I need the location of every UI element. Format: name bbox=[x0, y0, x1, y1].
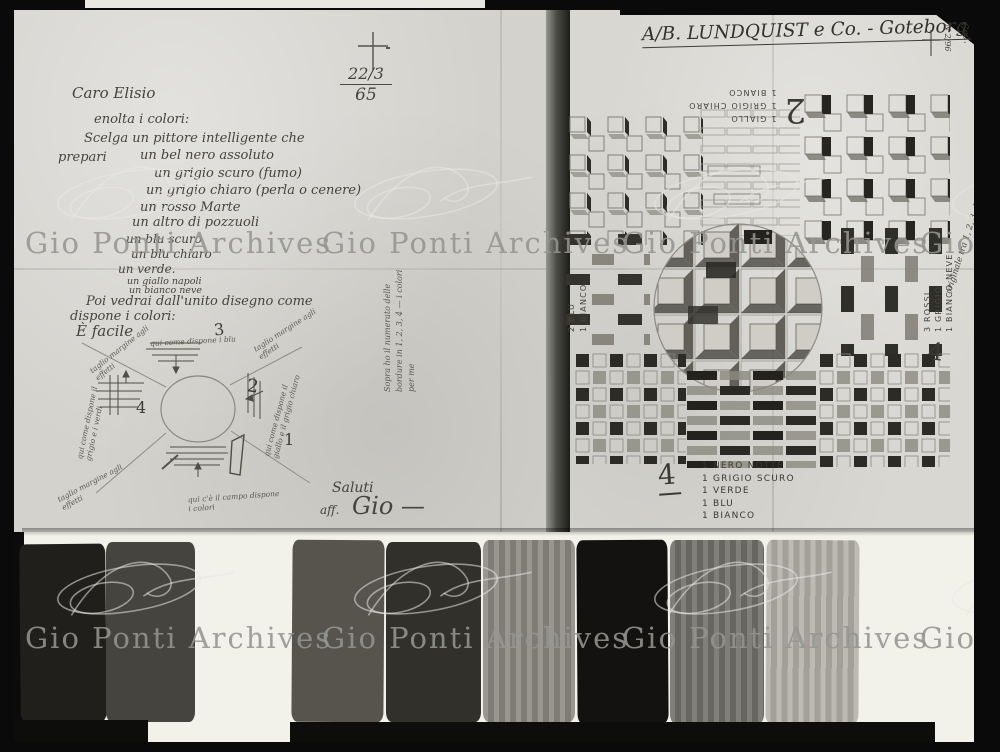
paint-swatch-grigio-chiaro bbox=[483, 540, 575, 722]
right-label-line: 1 BIANCO NEVE bbox=[944, 253, 955, 332]
left-label-line: 2 BLU bbox=[566, 284, 578, 332]
right-label-line: 3 ROSSI bbox=[922, 253, 933, 332]
paint-swatch-perla bbox=[765, 540, 859, 725]
date-numerator: 22/3 bbox=[340, 64, 392, 85]
signature-gio: Gio — bbox=[352, 492, 425, 520]
letter-line: un blu scuro bbox=[126, 232, 202, 246]
letter-line: un blu chiaro bbox=[131, 247, 212, 261]
paint-swatch-nero bbox=[19, 544, 107, 723]
paint-swatch-grigio bbox=[291, 540, 384, 723]
letter-line: un bel nero assoluto bbox=[140, 148, 274, 163]
color-list-item: 1 VERDE bbox=[702, 485, 795, 498]
date-fraction: 22/3 65 bbox=[340, 64, 392, 105]
photo-frame-gap bbox=[85, 0, 485, 8]
left-rotated-label: 2 BLU 1 BIANCO bbox=[566, 284, 590, 332]
paint-swatch-scuro bbox=[386, 542, 481, 722]
letter-line: Scelga un pittore intelligente che bbox=[84, 131, 305, 146]
sheet-shadow bbox=[22, 528, 975, 536]
letter-line: un grigio scuro (fumo) bbox=[154, 166, 302, 181]
photo-frame-right bbox=[974, 0, 1000, 752]
paint-swatch-grigio-scuro bbox=[106, 542, 195, 722]
letter-salutation: Caro Elisio bbox=[72, 84, 155, 102]
paint-swatch-nero-notte bbox=[576, 540, 668, 725]
letter-line: un grigio chiaro (perla o cenere) bbox=[146, 183, 361, 198]
paint-swatch-grigio-medio bbox=[670, 540, 764, 724]
letter-line: Poi vedrai dall'unito disegno come bbox=[86, 294, 313, 309]
inverted-label-number: 2 bbox=[784, 93, 806, 127]
inverted-label-line: 1 GRIGIO CHIARO bbox=[688, 99, 776, 112]
letter-line: un altro di pozzuoli bbox=[132, 215, 259, 230]
archive-photograph: 22/3 65 Caro Elisio enolta i colori: Sce… bbox=[0, 0, 1000, 752]
diagram-number-4: 4 bbox=[136, 398, 146, 417]
color-list: 1 NERO NOTTE 1 GRIGIO SCURO 1 VERDE 1 BL… bbox=[702, 460, 795, 523]
fold-crease bbox=[500, 10, 502, 532]
right-label-line: 1 GRIGIO bbox=[933, 253, 944, 332]
fold-crease bbox=[14, 268, 546, 270]
letter-line: un rosso Marte bbox=[140, 200, 240, 215]
color-list-item: 1 BLU bbox=[702, 498, 795, 511]
inverted-label-line: 1 GIALLO bbox=[688, 112, 776, 125]
mount-edge-band bbox=[290, 722, 935, 744]
color-list-item: 1 NERO NOTTE bbox=[702, 460, 795, 473]
pattern-sketch-checker-bottom-left bbox=[574, 352, 686, 464]
color-list-item: 1 BIANCO bbox=[702, 510, 795, 523]
photo-frame-left bbox=[0, 0, 14, 752]
letter-line: enolta i colori: bbox=[94, 112, 189, 127]
photo-frame-top-right bbox=[620, 0, 1000, 15]
inverted-label-line: 1 BIANCO bbox=[688, 86, 776, 99]
inverted-color-label: 2 1 GIALLO 1 GRIGIO CHIARO 1 BIANCO bbox=[688, 86, 806, 127]
fold-margin-note: Sopra ho il numerato delle bordure in 1,… bbox=[382, 260, 418, 392]
right-rotated-label: 3 ROSSI 1 GRIGIO 1 BIANCO NEVE bbox=[922, 253, 955, 332]
mount-edge-band bbox=[14, 720, 148, 744]
pattern-sketch-stripes-bottom-center bbox=[686, 368, 816, 468]
left-label-line: 1 BIANCO bbox=[578, 284, 590, 332]
photo-frame-bottom bbox=[0, 742, 1000, 752]
right-label-number: 4 bbox=[927, 337, 945, 366]
pattern-sketch-checker-bottom-right bbox=[818, 352, 950, 467]
signature-aff: aff. bbox=[320, 503, 339, 517]
date-denominator: 65 bbox=[340, 85, 392, 105]
letter-line: prepari bbox=[58, 150, 107, 165]
letter-line: un verde. bbox=[118, 262, 176, 276]
color-list-item: 1 GRIGIO SCURO bbox=[702, 473, 795, 486]
color-list-number: 4 bbox=[657, 457, 681, 495]
